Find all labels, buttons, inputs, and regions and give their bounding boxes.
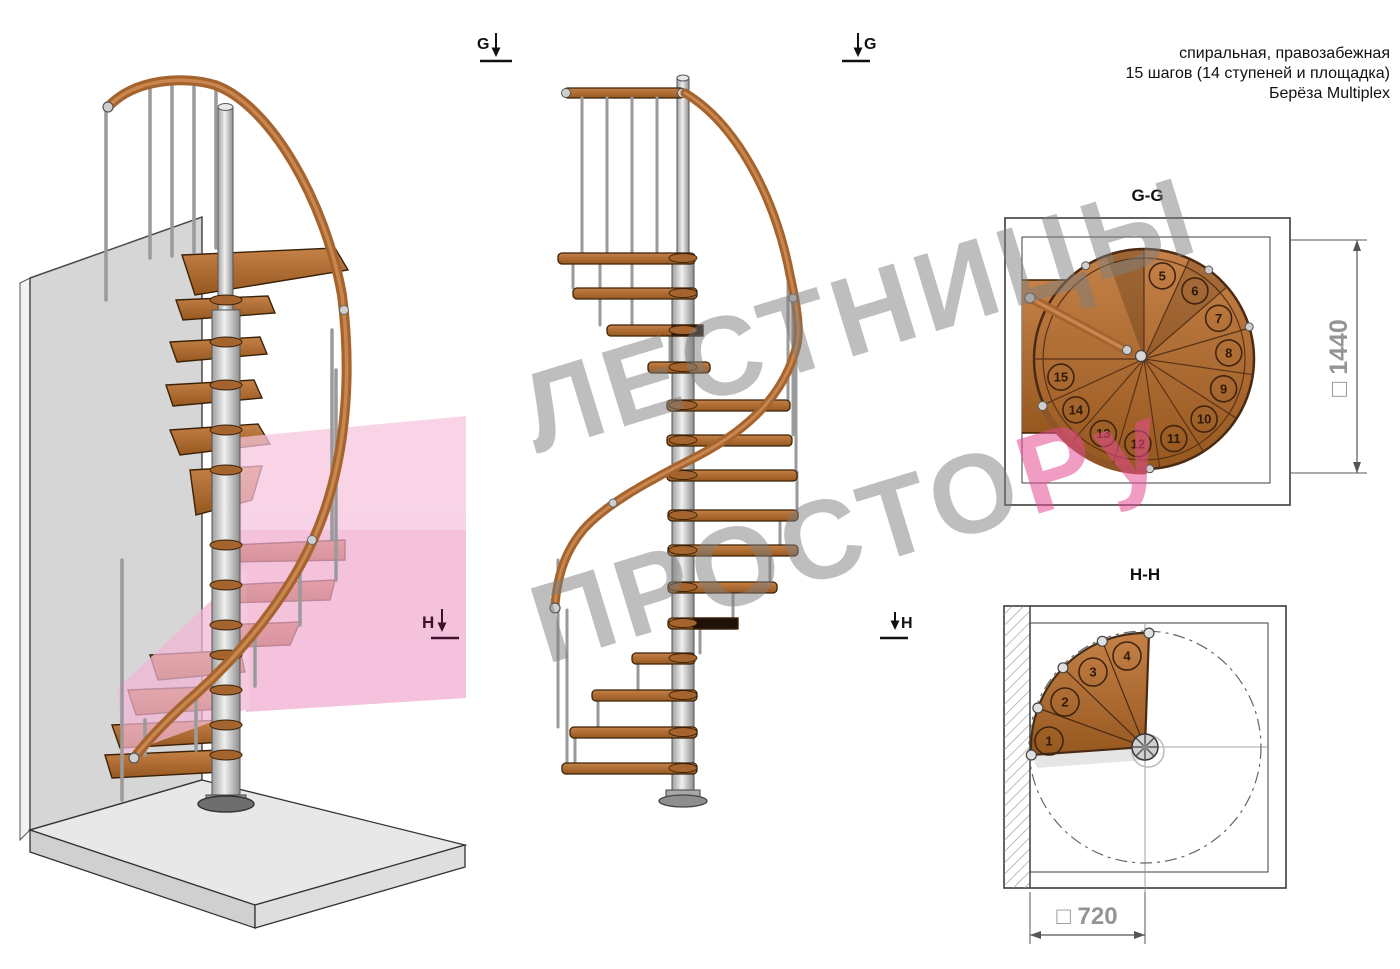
gg-dimension: □ 1440 <box>1291 240 1367 473</box>
svg-text:8: 8 <box>1225 345 1232 360</box>
svg-text:7: 7 <box>1215 311 1222 326</box>
svg-text:10: 10 <box>1197 412 1211 427</box>
svg-text:13: 13 <box>1096 426 1110 441</box>
svg-text:6: 6 <box>1191 283 1198 298</box>
svg-text:11: 11 <box>1167 431 1181 446</box>
svg-text:2: 2 <box>1061 695 1068 710</box>
svg-text:15: 15 <box>1054 370 1068 385</box>
h-label: H <box>422 613 434 632</box>
staircase-elevation-view: G G <box>450 20 960 820</box>
section-marker-g-left: G <box>477 33 512 61</box>
section-marker-h-right: H <box>880 612 913 638</box>
plan-view-gg: 5 6 7 8 9 10 11 12 13 14 15 □ 1440 <box>1000 182 1400 512</box>
hh-wall-hatch <box>1004 606 1030 888</box>
gg-pole-cap <box>1136 351 1147 362</box>
g-label: G <box>477 36 489 53</box>
spec-line-material: Берёза Multiplex <box>1126 84 1391 104</box>
spec-line-steps: 15 шагов (14 ступеней и площадка) <box>1126 64 1391 84</box>
staircase-3d-view: H <box>0 60 480 940</box>
svg-text:1: 1 <box>1045 734 1052 749</box>
landing-handrail <box>562 88 687 98</box>
section-marker-g-right: G <box>842 33 876 61</box>
svg-text:5: 5 <box>1159 268 1166 283</box>
h-label: H <box>901 615 913 632</box>
spec-info: спиральная, правозабежная 15 шагов (14 с… <box>1126 44 1391 104</box>
svg-text:3: 3 <box>1089 665 1096 680</box>
plan-hh-title: H-H <box>1004 565 1286 585</box>
svg-text:9: 9 <box>1220 381 1227 396</box>
gg-dimension-label: □ 1440 <box>1325 319 1353 397</box>
svg-text:4: 4 <box>1123 649 1131 664</box>
hh-dimension-label: □ 720 <box>1056 903 1117 930</box>
wall <box>20 217 202 840</box>
g-label: G <box>864 36 876 53</box>
spec-line-type: спиральная, правозабежная <box>1126 44 1391 64</box>
svg-text:12: 12 <box>1131 436 1145 451</box>
plan-view-hh: 1 2 3 4 □ 720 <box>990 560 1400 960</box>
drawing-canvas: H G G <box>0 0 1400 969</box>
pole-collars-elevation <box>669 254 697 773</box>
plan-gg-title: G-G <box>1005 186 1290 206</box>
svg-text:14: 14 <box>1069 402 1084 417</box>
hh-dimension: □ 720 <box>1030 892 1145 944</box>
